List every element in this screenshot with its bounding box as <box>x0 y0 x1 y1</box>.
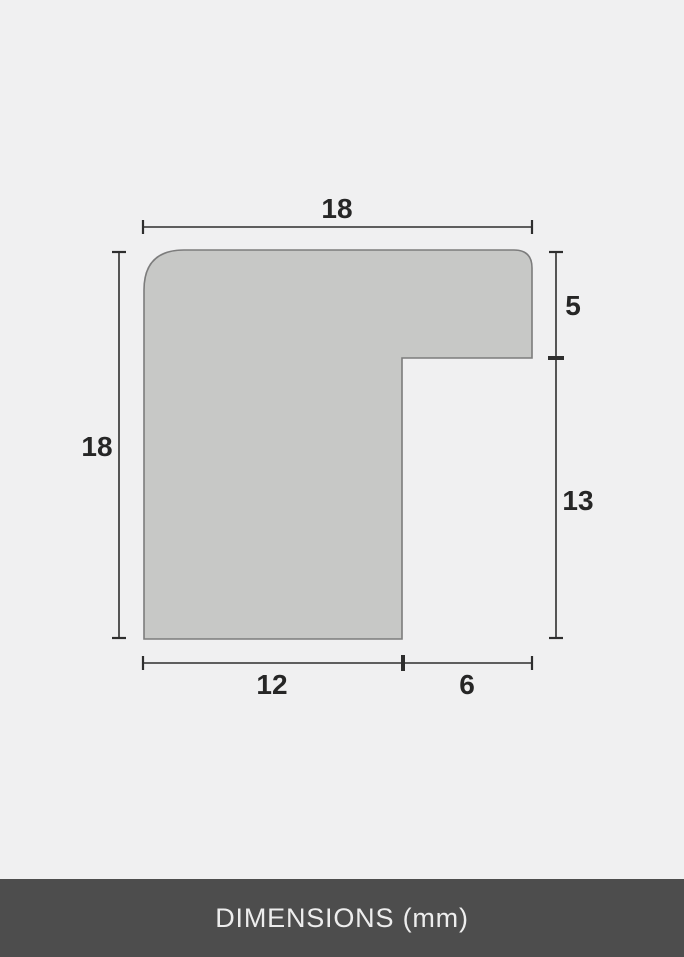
dimension-label-right-lower: 13 <box>562 485 593 516</box>
dimension-label-right-upper: 5 <box>565 290 581 321</box>
dimension-label-bottom-inner: 12 <box>256 669 287 700</box>
frame-profile-shape <box>144 250 532 639</box>
dimension-left-height: 18 <box>81 252 126 638</box>
dimensions-footer-label: DIMENSIONS (mm) <box>215 903 468 934</box>
dimension-top-width: 18 <box>143 193 532 234</box>
dimension-label-top-width: 18 <box>321 193 352 224</box>
dimension-bottom-widths: 12 6 <box>143 655 532 700</box>
profile-diagram: 18 18 5 13 <box>0 0 684 879</box>
dimension-label-left-height: 18 <box>81 431 112 462</box>
profile-diagram-svg: 18 18 5 13 <box>0 0 684 879</box>
dimension-label-bottom-rebate: 6 <box>459 669 475 700</box>
dimension-right-heights: 5 13 <box>548 252 594 638</box>
dimensions-footer: DIMENSIONS (mm) <box>0 879 684 957</box>
page: 18 18 5 13 <box>0 0 684 957</box>
